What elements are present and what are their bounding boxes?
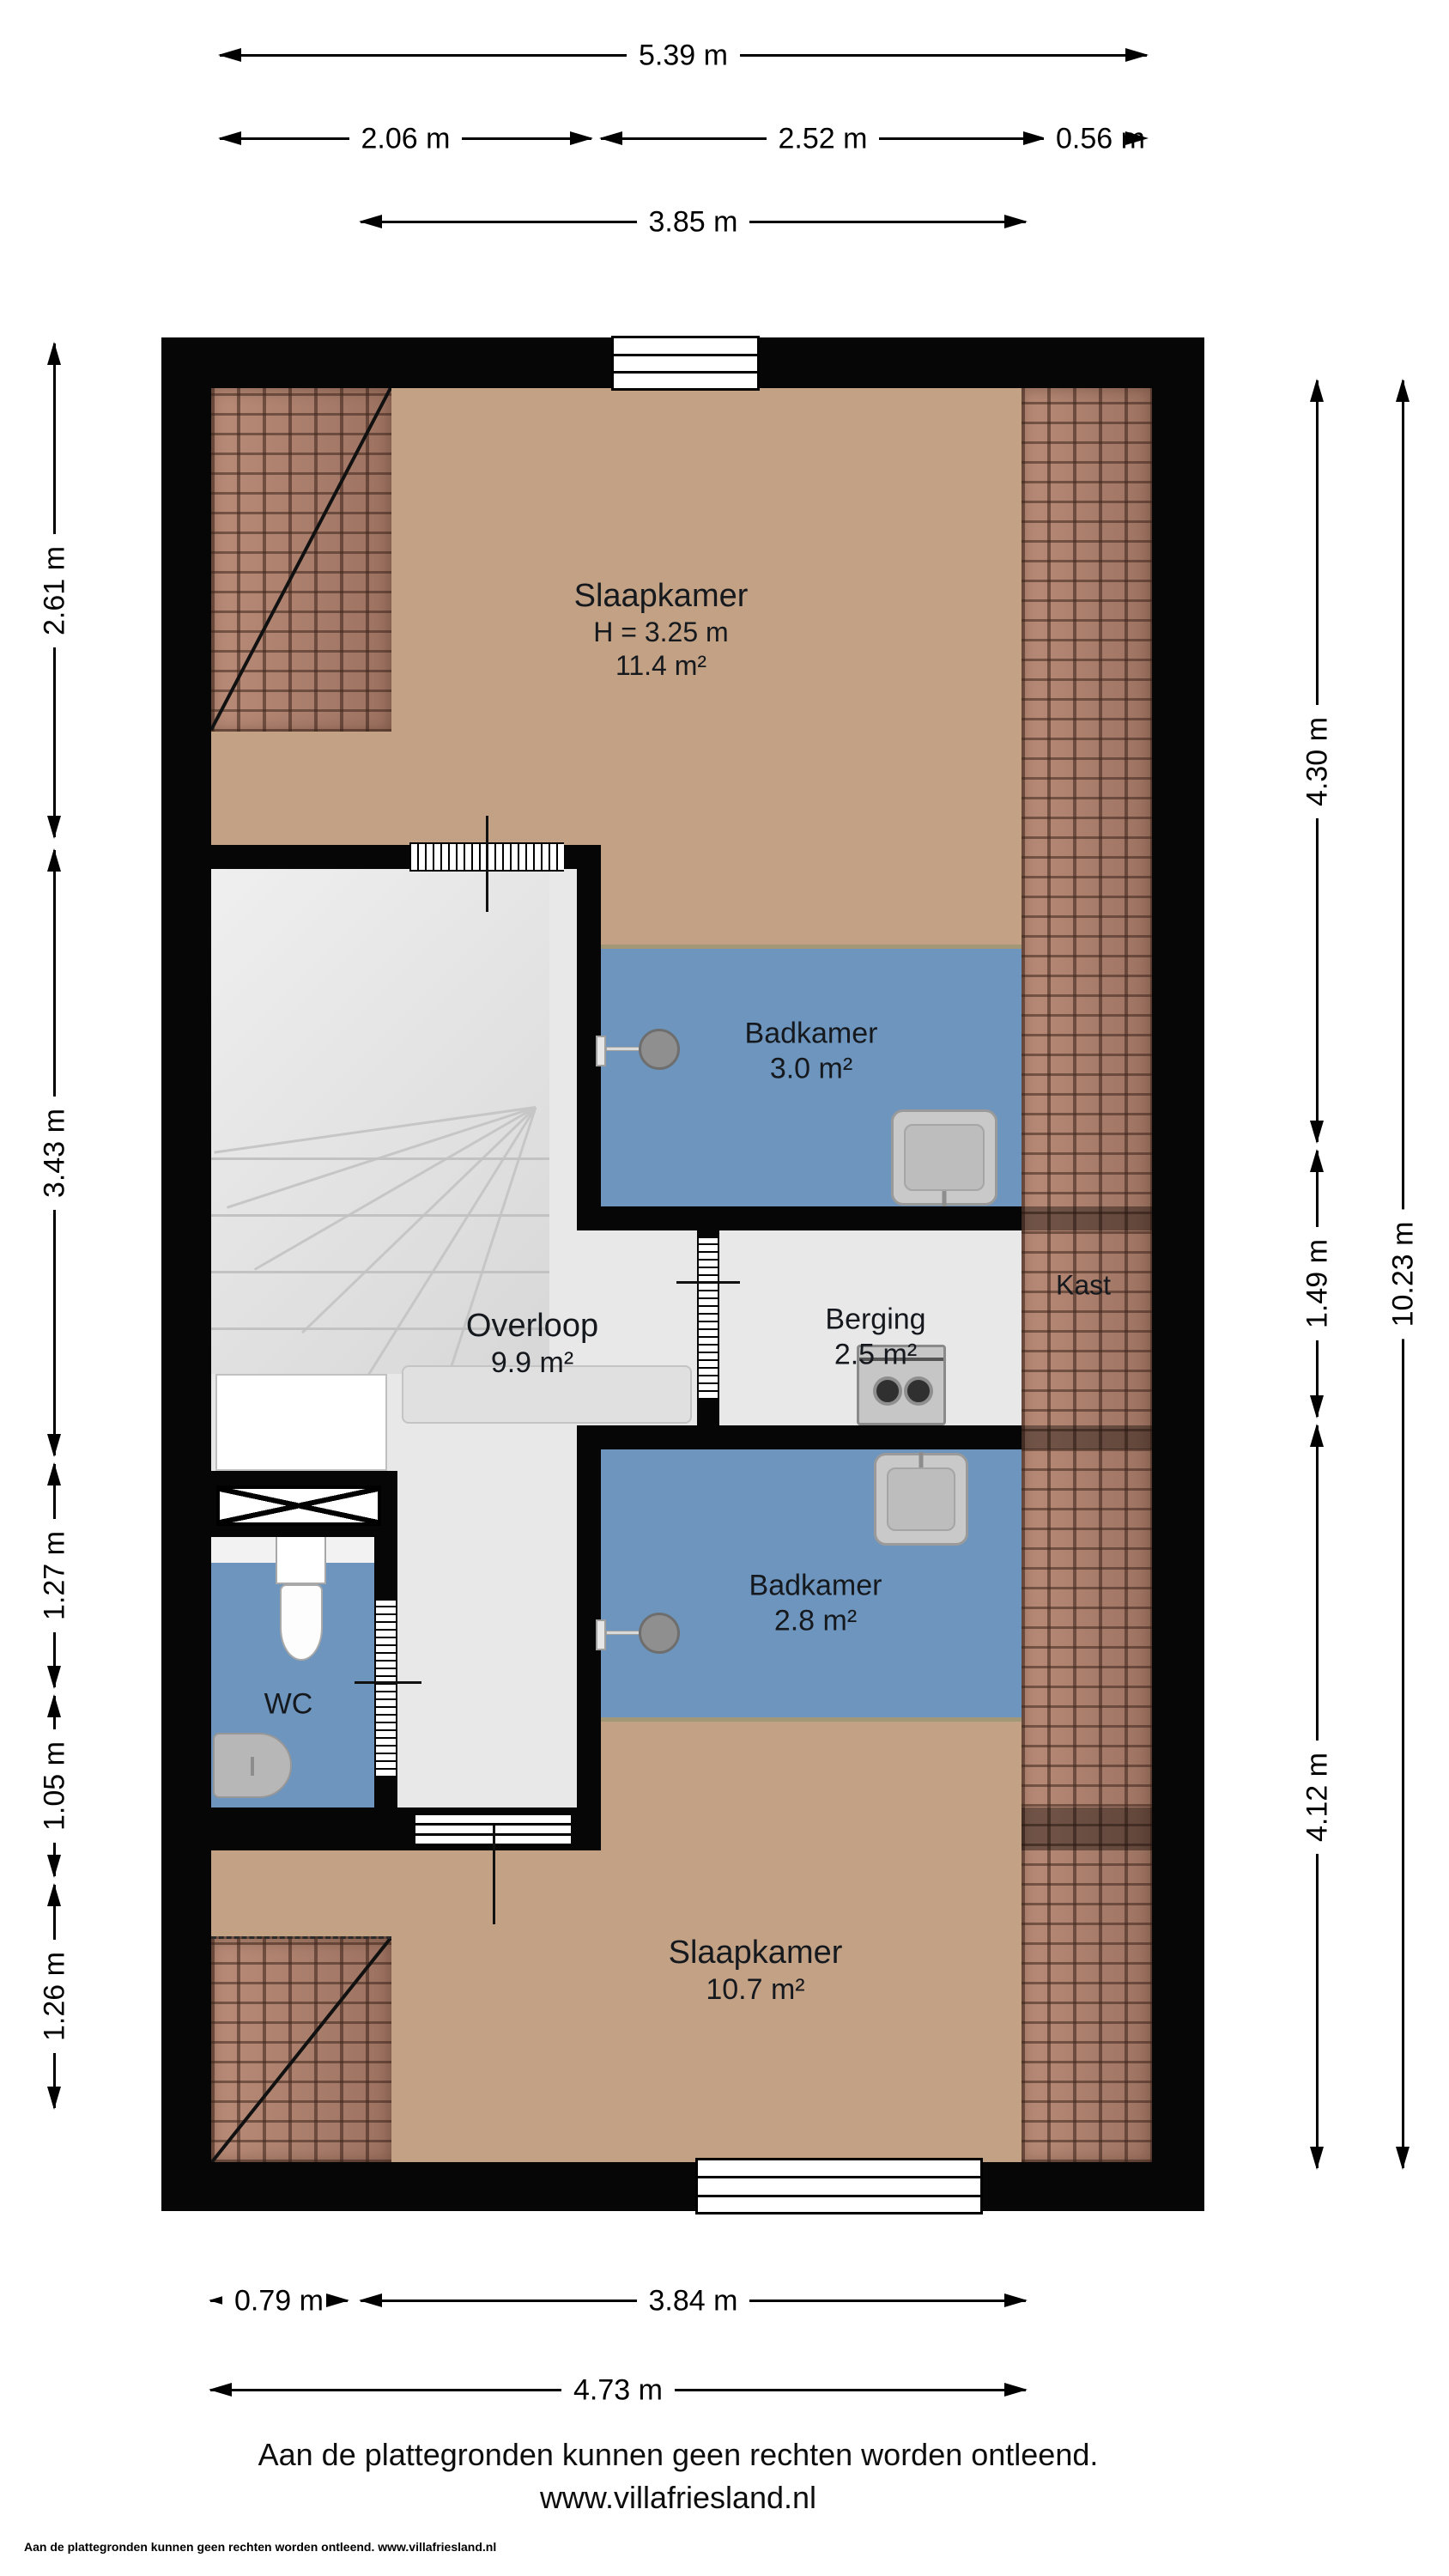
dim-label: 3.84 m <box>637 2282 750 2319</box>
dim-label: 3.85 m <box>637 204 750 240</box>
roof-valley-line <box>211 388 391 731</box>
room-label-badkamer-top: Badkamer 3.0 m² <box>745 1017 878 1088</box>
room-area: 10.7 m² <box>669 1972 843 2008</box>
dim-label: 2.52 m <box>767 120 880 157</box>
website-text: www.villafriesland.nl <box>52 2480 1305 2516</box>
room-area: 3.0 m² <box>745 1052 878 1087</box>
dim-label: 4.12 m <box>1299 1741 1336 1854</box>
room-area: 9.9 m² <box>466 1346 598 1381</box>
dim-right-total: 10.23 m <box>1402 380 1404 2168</box>
dim-label: 0.56 m <box>1044 120 1157 157</box>
room-label-overloop: Overloop 9.9 m² <box>466 1306 598 1382</box>
dim-right-1: 4.30 m <box>1316 380 1319 1142</box>
roof-tiles-wall-shadow-2 <box>1022 1425 1152 1449</box>
door-tick <box>676 1281 740 1284</box>
website-url: www.villafriesland.nl <box>540 2480 816 2515</box>
dim-top-inner: 3.85 m <box>361 221 1026 223</box>
shower-head <box>639 1029 680 1070</box>
dim-left-3: 1.27 m <box>53 1464 56 1687</box>
room-label-badkamer-bottom: Badkamer 2.8 m² <box>749 1569 882 1640</box>
dim-label: 4.73 m <box>561 2372 675 2409</box>
room-label-slaapkamer-bottom: Slaapkamer 10.7 m² <box>669 1933 843 2008</box>
room-label-kast: Kast <box>1056 1268 1111 1302</box>
dim-bottom-left-segment: 0.79 m <box>210 2300 348 2302</box>
washbasin-icon-wc <box>213 1733 292 1798</box>
door-tick <box>355 1681 421 1684</box>
wall-berging-badkamer <box>577 1425 1022 1449</box>
room-name: Overloop <box>466 1306 598 1346</box>
roof-tiles-bottom-left <box>211 1936 391 2162</box>
shower-head-icon-bottom <box>596 1619 606 1650</box>
dim-label: 1.49 m <box>1299 1227 1336 1340</box>
room-label-slaapkamer-top: Slaapkamer H = 3.25 m 11.4 m² <box>574 576 749 683</box>
room-name: WC <box>264 1686 313 1722</box>
window-bottom-facade <box>695 2158 983 2215</box>
cross-hatch-skylight-icon <box>216 1485 381 1526</box>
roof-tiles-top-left <box>211 388 391 732</box>
room-height: H = 3.25 m <box>574 616 749 649</box>
watermark-line: Aan de plattegronden kunnen geen rechten… <box>24 2540 496 2554</box>
washbasin-icon-badkamer-bottom <box>874 1453 968 1546</box>
window-center-tick <box>486 816 488 912</box>
dim-label: 2.61 m <box>36 534 73 647</box>
dim-left-1: 2.61 m <box>53 343 56 837</box>
dim-left-4: 1.05 m <box>53 1696 56 1876</box>
room-area: 11.4 m² <box>574 649 749 683</box>
dim-top-total: 5.39 m <box>220 54 1147 57</box>
dim-bottom-mid-segment: 3.84 m <box>361 2300 1026 2302</box>
dim-top-left-segment: 2.06 m <box>220 137 591 140</box>
window-top-facade <box>611 336 760 391</box>
roof-tiles-wall-shadow-1 <box>1022 1206 1152 1230</box>
dim-label: 3.43 m <box>36 1097 73 1210</box>
door-berging <box>699 1238 718 1400</box>
dim-label: 1.05 m <box>36 1729 73 1843</box>
room-label-wc: WC <box>264 1686 313 1722</box>
dim-label: 1.27 m <box>36 1519 73 1632</box>
room-label-berging: Berging 2.5 m² <box>825 1303 925 1374</box>
dim-top-mid-segment: 2.52 m <box>601 137 1045 140</box>
dim-label: 2.06 m <box>349 120 463 157</box>
window-center-tick <box>493 1826 495 1924</box>
dim-label: 5.39 m <box>627 37 740 74</box>
floor-slaapkamer-top-ext <box>601 845 1022 949</box>
room-area: 2.5 m² <box>825 1338 925 1373</box>
dim-label: 1.26 m <box>36 1940 73 2053</box>
roof-tiles-wall-shadow-3 <box>1022 1807 1152 1850</box>
dim-top-right-segment: 0.56 m <box>1054 137 1147 140</box>
dim-label: 0.79 m <box>222 2282 336 2319</box>
room-name: Slaapkamer <box>669 1933 843 1972</box>
stairwell-void <box>215 1374 387 1471</box>
room-name: Badkamer <box>745 1017 878 1052</box>
disclaimer-text: Aan de plattegronden kunnen geen rechten… <box>52 2437 1305 2473</box>
room-area: 2.8 m² <box>749 1604 882 1639</box>
toilet-bowl <box>280 1584 323 1661</box>
knee-wall-line-bottom <box>601 1717 1022 1722</box>
room-name: Badkamer <box>749 1569 882 1604</box>
room-name: Kast <box>1056 1268 1111 1302</box>
dim-left-2: 3.43 m <box>53 850 56 1455</box>
winder-staircase <box>211 869 549 1374</box>
room-name: Slaapkamer <box>574 576 749 616</box>
shower-head <box>639 1613 680 1654</box>
room-name: Berging <box>825 1303 925 1338</box>
dim-label: 4.30 m <box>1299 705 1336 818</box>
toilet-icon <box>276 1535 326 1584</box>
shower-head-icon-top <box>596 1036 606 1066</box>
roof-valley-line <box>211 1936 391 2162</box>
dim-right-3: 4.12 m <box>1316 1425 1319 2168</box>
dim-label: 10.23 m <box>1385 1210 1422 1340</box>
disclaimer-line: Aan de plattegronden kunnen geen rechten… <box>258 2437 1099 2472</box>
dim-left-5: 1.26 m <box>53 1885 56 2108</box>
dim-bottom-total: 4.73 m <box>210 2389 1026 2391</box>
knee-wall-line-top <box>601 945 1022 949</box>
watermark-text: Aan de plattegronden kunnen geen rechten… <box>24 2540 496 2554</box>
door-wc <box>376 1601 396 1777</box>
wall-badkamer-top-bottom <box>577 1206 1022 1230</box>
washbasin-icon-badkamer-top <box>891 1109 997 1206</box>
dim-right-2: 1.49 m <box>1316 1151 1319 1417</box>
